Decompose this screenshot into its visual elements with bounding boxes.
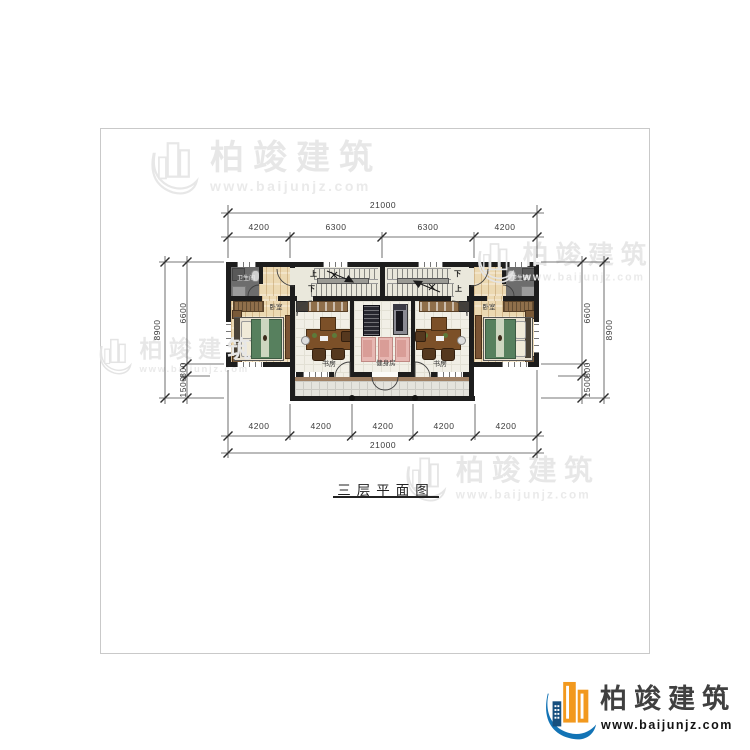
stair-treads [387,283,454,297]
wall [411,301,415,377]
pillow [515,340,526,357]
room-label-bathroom-right: 卫生间 [507,276,533,283]
brand-site: www.baijunjz.com [601,718,733,732]
treadmill-belt [396,311,403,331]
room-label-study-right: 书房 [428,361,452,369]
title-underline [333,496,439,498]
dim-bottom-seg: 4200 [486,421,526,431]
wall [278,296,295,301]
room-label-bathroom-left: 卫生间 [233,276,259,283]
dim-left-part: 6600 [178,293,188,333]
chair [312,348,326,361]
wall [290,262,295,268]
stool [457,336,466,345]
dim-left-total: 8900 [152,310,162,350]
wall [469,262,474,268]
dim-right-part: 6600 [582,293,592,333]
window [237,362,263,367]
stair-treads [311,283,378,297]
window [237,262,256,267]
dim-bottom-seg: 4200 [363,421,403,431]
stair-rail [317,278,369,284]
dim-top-seg: 6300 [316,222,356,232]
stair-label-up-left: 上 [309,271,318,279]
wall [259,262,263,284]
wall [313,296,380,301]
dim-bottom-seg: 4200 [424,421,464,431]
dresser [475,315,482,359]
wall [469,285,474,401]
stair-label-down-right: 下 [453,271,462,279]
stair-rail [397,278,449,284]
window [226,322,231,353]
bookshelf [419,301,459,312]
desk-return [431,317,447,331]
chair [441,348,455,361]
wall [503,296,539,301]
terrace-railing [290,396,475,401]
treadmill-console [393,304,406,310]
dim-top-seg: 6300 [408,222,448,232]
door-gap-floor [262,296,278,301]
room-label-gym: 健身房 [369,360,403,367]
dim-bottom-seg: 4200 [239,421,279,431]
wall [470,296,487,301]
bookshelf [308,301,348,312]
desk-paper [320,336,328,341]
desk-plant [312,333,317,338]
wall [354,372,372,377]
terrace-floor [295,381,469,396]
brand-logo-block: 柏竣建筑 www.baijunjz.com [538,674,748,748]
window [534,322,539,353]
room-label-bedroom-left: 卧室 [264,304,288,311]
door-gap-floor [290,268,295,285]
desk-return [320,317,336,331]
dim-left-part: 1500 [178,372,188,402]
chair [415,331,426,342]
stool [301,336,310,345]
wall [290,285,295,401]
window [323,262,348,267]
window [437,372,463,377]
bed-knot [263,335,267,341]
door-gap-floor [469,268,474,285]
terrace-column [412,395,418,401]
yoga-mat-inner [380,340,389,357]
chair [422,348,436,360]
window [509,262,528,267]
yoga-mat-inner [363,340,372,357]
weight-rack [363,305,380,336]
window [502,362,528,367]
terrace-column [349,395,355,401]
dim-right-part: 1500 [582,372,592,402]
stair-label-up-right: 上 [454,286,463,294]
bed-knot [498,335,502,341]
desk-paper [436,336,444,341]
stair-label-down-left: 下 [307,286,316,294]
room-label-study-left: 书房 [317,361,341,369]
wall [350,301,354,377]
wall [385,296,451,301]
window [418,262,443,267]
dim-bottom-seg: 4200 [301,421,341,431]
pillow [515,321,526,339]
dim-top-seg: 4200 [485,222,525,232]
wall [502,262,506,284]
window [303,372,329,377]
yoga-mat-inner [397,340,406,357]
dim-top-total: 21000 [352,200,414,210]
door-gap-floor [502,284,506,296]
chair [331,348,345,360]
brand-name: 柏竣建筑 [600,686,736,713]
bed-headboard [234,318,240,358]
dim-bottom-total: 21000 [352,440,414,450]
room-label-bedroom-right: 卧室 [477,304,501,311]
dim-right-total: 8900 [604,310,614,350]
desk-plant [332,333,337,338]
dim-top-seg: 4200 [239,222,279,232]
door-gap-floor [259,284,263,296]
floor-plan-page: 柏竣建筑 www.baijunjz.com 柏竣建筑 www.baijunjz.… [0,0,750,750]
door-gap-floor [487,296,503,301]
wall [398,372,411,377]
brand-logo-icon [540,678,598,742]
wall [226,296,262,301]
